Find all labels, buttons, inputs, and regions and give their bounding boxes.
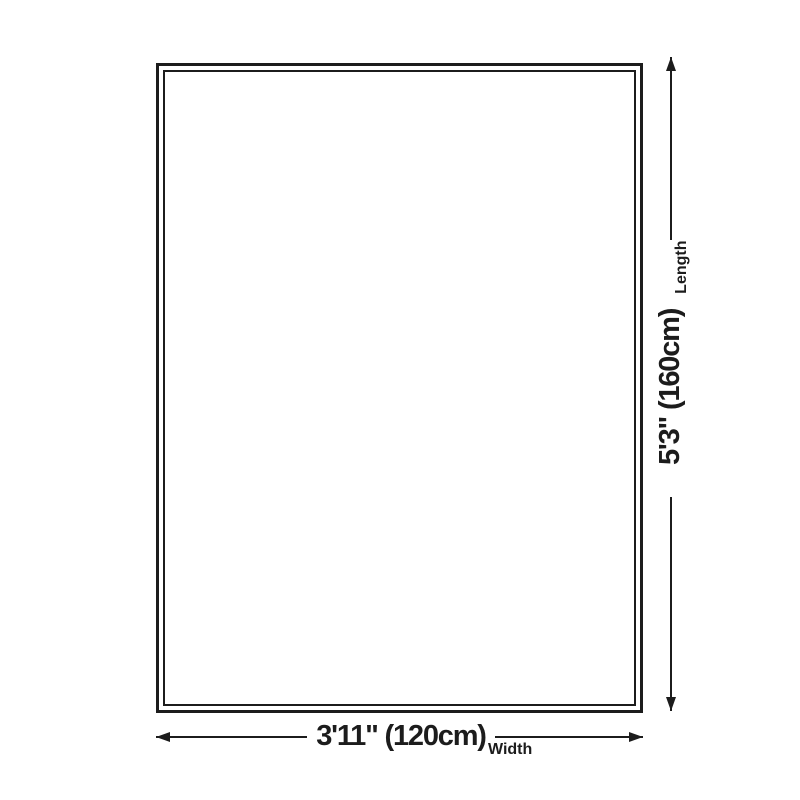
length-label: Length: [674, 240, 690, 293]
width-dimension: 3'11" (120cm) Width: [156, 717, 643, 757]
arrowhead-down-icon: [666, 697, 676, 711]
width-arrow-right-segment: Width: [495, 736, 643, 738]
rug-inner-border: [163, 70, 636, 706]
rug-outline: [156, 63, 643, 713]
length-value: 5'3" (160cm): [655, 309, 687, 465]
arrowhead-right-icon: [629, 732, 643, 742]
arrowhead-left-icon: [156, 732, 170, 742]
width-label: Width: [488, 742, 532, 758]
length-arrow-top-segment: [670, 57, 672, 240]
width-arrow-left-segment: [156, 736, 307, 738]
length-dimension: 5'3" (160cm) Length: [651, 62, 691, 711]
dimension-diagram: 3'11" (120cm) Width 5'3" (160cm) Length: [0, 0, 800, 800]
length-arrow-bottom-segment: [670, 497, 672, 711]
width-value: 3'11" (120cm): [307, 721, 495, 753]
arrowhead-up-icon: [666, 57, 676, 71]
